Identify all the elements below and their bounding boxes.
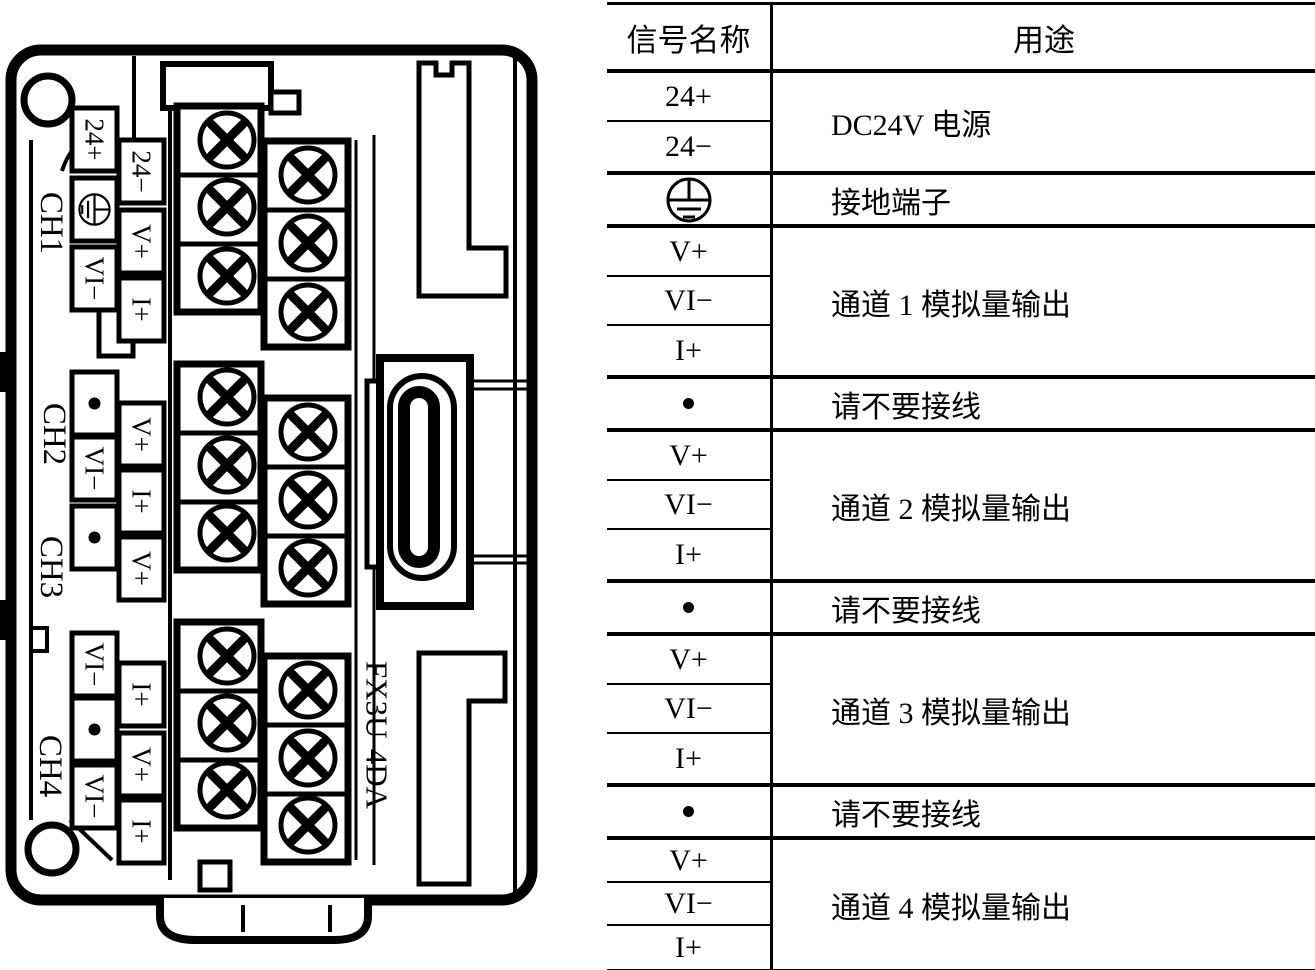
signal-cell bbox=[607, 583, 770, 632]
no-wire-dot-icon bbox=[89, 532, 101, 544]
signal-cell: I+ bbox=[607, 734, 770, 783]
table-body: 24+24−DC24V 电源接地端子V+VI−I+通道 1 模拟量输出请不要接线… bbox=[607, 73, 1315, 970]
terminal-cover-tab-bottom bbox=[200, 862, 230, 890]
svg-text:VI−: VI− bbox=[80, 447, 110, 491]
screw-terminal-icon bbox=[200, 438, 254, 492]
table-group: 接地端子 bbox=[607, 175, 1315, 228]
screw-terminal-icon bbox=[281, 405, 335, 459]
purpose-cell: 请不要接线 bbox=[773, 583, 1315, 632]
svg-text:V+: V+ bbox=[127, 224, 157, 259]
table-group: V+VI−I+通道 3 模拟量输出 bbox=[607, 636, 1315, 787]
screw-terminal-icon bbox=[200, 249, 254, 303]
svg-text:V+: V+ bbox=[127, 417, 157, 452]
channel-label: CH1 bbox=[33, 192, 69, 254]
signal-column bbox=[607, 175, 773, 224]
no-wire-dot-icon bbox=[683, 398, 694, 409]
figure-page: 24+VI−VI−VI−VI−24−V+I+V+I+V+I+V+I+ CH1CH… bbox=[0, 0, 1315, 970]
table-group: 请不要接线 bbox=[607, 787, 1315, 840]
svg-text:I+: I+ bbox=[127, 489, 157, 513]
terminal-label: V+ bbox=[119, 403, 164, 466]
no-wire-dot-icon bbox=[89, 398, 101, 410]
purpose-cell: 通道 3 模拟量输出 bbox=[773, 636, 1315, 783]
ground-symbol-icon bbox=[666, 177, 712, 223]
terminal-label: V+ bbox=[119, 537, 164, 600]
terminal-label: I+ bbox=[119, 663, 164, 726]
no-wire-dot-icon bbox=[683, 602, 694, 613]
svg-text:I+: I+ bbox=[127, 819, 157, 843]
terminal-label: 24+ bbox=[72, 108, 117, 171]
no-wire-dot-icon bbox=[683, 806, 694, 817]
table-group: V+VI−I+通道 1 模拟量输出 bbox=[607, 228, 1315, 379]
screw-terminal-icon bbox=[281, 731, 335, 785]
signal-cell bbox=[607, 787, 770, 836]
signal-cell: VI− bbox=[607, 685, 770, 734]
signal-cell: I+ bbox=[607, 926, 770, 969]
screw-terminal-icon bbox=[281, 663, 335, 717]
signal-column: V+VI−I+ bbox=[607, 840, 773, 969]
terminal-label: I+ bbox=[119, 470, 164, 533]
signal-cell: VI− bbox=[607, 883, 770, 926]
terminal-label: VI− bbox=[72, 437, 117, 500]
svg-text:V+: V+ bbox=[127, 551, 157, 586]
svg-text:I+: I+ bbox=[127, 297, 157, 321]
svg-text:VI−: VI− bbox=[80, 257, 110, 301]
signal-cell: 24+ bbox=[607, 73, 770, 122]
no-wire-dot-icon bbox=[89, 724, 101, 736]
table-group: V+VI−I+通道 4 模拟量输出 bbox=[607, 840, 1315, 970]
table-group: 请不要接线 bbox=[607, 583, 1315, 636]
signal-cell: VI− bbox=[607, 277, 770, 326]
table-group: V+VI−I+通道 2 模拟量输出 bbox=[607, 432, 1315, 583]
purpose-cell: 通道 1 模拟量输出 bbox=[773, 228, 1315, 375]
svg-text:VI−: VI− bbox=[80, 643, 110, 687]
screw-terminal-icon bbox=[200, 506, 254, 560]
signal-column: 24+24− bbox=[607, 73, 773, 171]
screw-terminal-icon bbox=[281, 798, 335, 852]
screw-terminal-icon bbox=[200, 629, 254, 683]
terminal-label: I+ bbox=[119, 278, 164, 341]
svg-text:VI−: VI− bbox=[80, 775, 110, 819]
purpose-cell: 请不要接线 bbox=[773, 787, 1315, 836]
channel-label: CH3 bbox=[33, 536, 69, 598]
header-signal-name: 信号名称 bbox=[607, 5, 773, 69]
header-purpose: 用途 bbox=[773, 5, 1315, 69]
signal-cell: VI− bbox=[607, 481, 770, 530]
screw-terminal-icon bbox=[200, 763, 254, 817]
terminal-label: VI− bbox=[72, 765, 117, 828]
channel-label: CH2 bbox=[36, 403, 72, 465]
signal-column bbox=[607, 583, 773, 632]
terminal-label bbox=[72, 506, 117, 569]
model-label: FX3U-4DA bbox=[360, 661, 395, 810]
signal-cell: 24− bbox=[607, 122, 770, 171]
screw-terminal-icon bbox=[200, 696, 254, 750]
screw-terminal-icon bbox=[200, 113, 254, 167]
terminal-label bbox=[72, 372, 117, 435]
screw-terminal-icon bbox=[281, 541, 335, 595]
signal-cell: V+ bbox=[607, 840, 770, 883]
signal-cell bbox=[607, 175, 770, 224]
signal-column: V+VI−I+ bbox=[607, 432, 773, 579]
signal-column bbox=[607, 787, 773, 836]
terminal-label: VI− bbox=[72, 247, 117, 310]
signal-cell: I+ bbox=[607, 326, 770, 375]
svg-text:24−: 24− bbox=[127, 150, 157, 192]
signal-column: V+VI−I+ bbox=[607, 636, 773, 783]
terminal-cover-tab-top bbox=[163, 64, 271, 108]
screw-terminal-icon bbox=[200, 180, 254, 234]
din-tab-left-lower bbox=[0, 600, 13, 640]
purpose-cell: DC24V 电源 bbox=[773, 73, 1315, 171]
channel-label: CH4 bbox=[32, 735, 68, 797]
screw-terminal-icon bbox=[281, 285, 335, 339]
purpose-cell: 通道 2 模拟量输出 bbox=[773, 432, 1315, 579]
terminal-label: I+ bbox=[119, 800, 164, 863]
purpose-cell: 通道 4 模拟量输出 bbox=[773, 840, 1315, 969]
terminal-label: V+ bbox=[119, 733, 164, 796]
signal-cell: V+ bbox=[607, 636, 770, 685]
module-diagram: 24+VI−VI−VI−VI−24−V+I+V+I+V+I+V+I+ CH1CH… bbox=[0, 0, 560, 970]
signal-table: 信号名称 用途 24+24−DC24V 电源接地端子V+VI−I+通道 1 模拟… bbox=[607, 2, 1315, 970]
signal-column: V+VI−I+ bbox=[607, 228, 773, 375]
signal-cell bbox=[607, 379, 770, 428]
svg-text:24+: 24+ bbox=[80, 118, 110, 160]
signal-cell: V+ bbox=[607, 228, 770, 277]
purpose-cell: 接地端子 bbox=[773, 175, 1315, 224]
terminal-labels: 24+VI−VI−VI−VI−24−V+I+V+I+V+I+V+I+ bbox=[72, 108, 164, 863]
din-tab-left-upper bbox=[0, 352, 13, 392]
svg-text:V+: V+ bbox=[127, 747, 157, 782]
screw-terminal-icon bbox=[281, 216, 335, 270]
din-rail-clip bbox=[160, 898, 368, 940]
terminal-label: VI− bbox=[72, 633, 117, 696]
signal-column bbox=[607, 379, 773, 428]
table-group: 请不要接线 bbox=[607, 379, 1315, 432]
purpose-cell: 请不要接线 bbox=[773, 379, 1315, 428]
screw-terminal-icon bbox=[281, 148, 335, 202]
fx3u-4da-module-drawing: 24+VI−VI−VI−VI−24−V+I+V+I+V+I+V+I+ CH1CH… bbox=[0, 0, 560, 970]
svg-text:I+: I+ bbox=[127, 682, 157, 706]
terminal-label: 24− bbox=[119, 140, 164, 203]
table-header-row: 信号名称 用途 bbox=[607, 5, 1315, 73]
signal-cell: I+ bbox=[607, 530, 770, 579]
table-group: 24+24−DC24V 电源 bbox=[607, 73, 1315, 175]
terminal-label bbox=[72, 698, 117, 761]
terminal-label bbox=[72, 178, 117, 241]
screw-terminal-icon bbox=[281, 473, 335, 527]
screw-terminal-icon bbox=[200, 370, 254, 424]
signal-cell: V+ bbox=[607, 432, 770, 481]
terminal-label: V+ bbox=[119, 210, 164, 273]
